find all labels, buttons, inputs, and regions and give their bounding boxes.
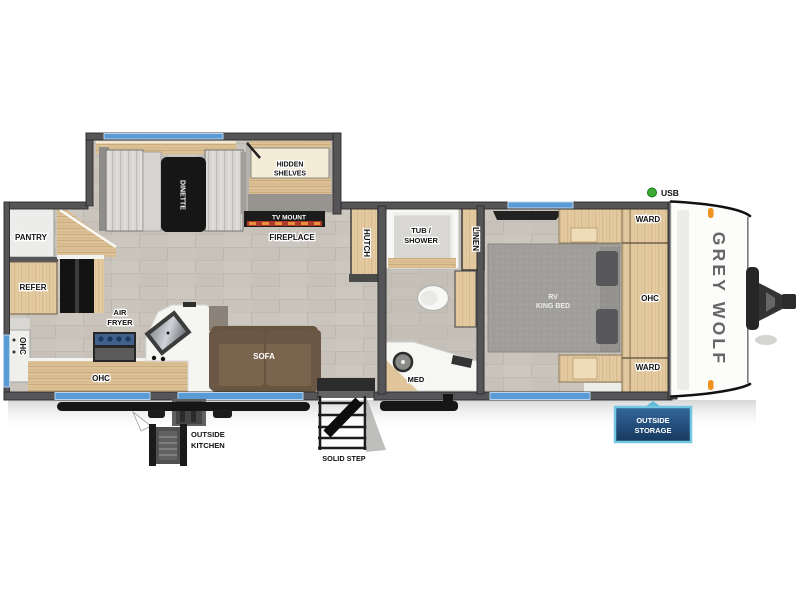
svg-text:USB: USB [661, 188, 679, 198]
svg-text:KITCHEN: KITCHEN [191, 441, 225, 450]
svg-text:OUTSIDE: OUTSIDE [191, 430, 225, 439]
svg-text:WARD: WARD [636, 215, 661, 224]
svg-text:AIR: AIR [114, 308, 128, 317]
svg-text:TV MOUNT: TV MOUNT [272, 215, 306, 222]
svg-text:HIDDEN: HIDDEN [277, 162, 304, 169]
svg-text:SOFA: SOFA [253, 352, 275, 361]
svg-text:SHOWER: SHOWER [404, 236, 438, 245]
svg-text:STORAGE: STORAGE [635, 426, 672, 435]
svg-text:SOLID STEP: SOLID STEP [322, 454, 366, 463]
svg-text:PANTRY: PANTRY [15, 233, 48, 242]
svg-text:MED: MED [408, 375, 425, 384]
svg-text:HUTCH: HUTCH [362, 229, 371, 257]
svg-text:LINEN: LINEN [471, 227, 480, 251]
svg-text:OHC: OHC [18, 337, 27, 355]
svg-text:DINETTE: DINETTE [179, 180, 186, 210]
svg-text:RV: RV [548, 294, 558, 301]
svg-text:REFER: REFER [19, 283, 46, 292]
svg-text:OUTSIDE: OUTSIDE [636, 416, 669, 425]
svg-text:GREY WOLF: GREY WOLF [709, 232, 729, 366]
svg-text:TUB /: TUB / [411, 226, 431, 235]
svg-text:OHC: OHC [641, 294, 659, 303]
svg-text:FRYER: FRYER [107, 318, 133, 327]
svg-text:KING BED: KING BED [536, 303, 570, 310]
svg-text:WARD: WARD [636, 363, 661, 372]
svg-text:OHC: OHC [92, 374, 110, 383]
svg-text:FIREPLACE: FIREPLACE [269, 233, 315, 242]
svg-text:SHELVES: SHELVES [274, 171, 306, 178]
